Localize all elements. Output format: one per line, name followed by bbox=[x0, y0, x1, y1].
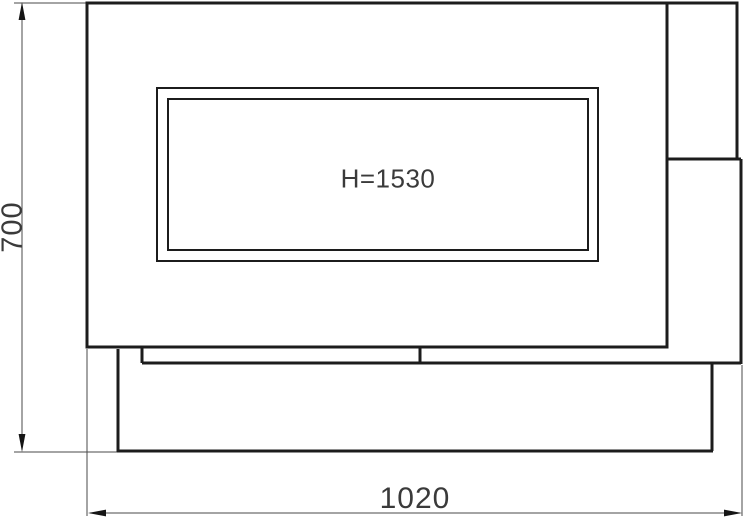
dimension-lines bbox=[14, 3, 742, 516]
technical-drawing-canvas: 700 1020 H=1530 bbox=[0, 0, 744, 522]
height-dimension-label: 700 bbox=[0, 201, 30, 252]
window-height-label: H=1530 bbox=[341, 164, 436, 195]
drawing-linework bbox=[0, 0, 744, 522]
structure-lines bbox=[87, 3, 741, 452]
arrow-up-icon bbox=[19, 2, 26, 20]
arrow-down-icon bbox=[19, 434, 26, 452]
arrow-left-icon bbox=[88, 510, 106, 517]
width-dimension-label: 1020 bbox=[380, 482, 451, 516]
dimension-arrows bbox=[19, 2, 742, 516]
top-right-panel-outline bbox=[667, 3, 737, 159]
arrow-right-icon bbox=[724, 510, 742, 517]
